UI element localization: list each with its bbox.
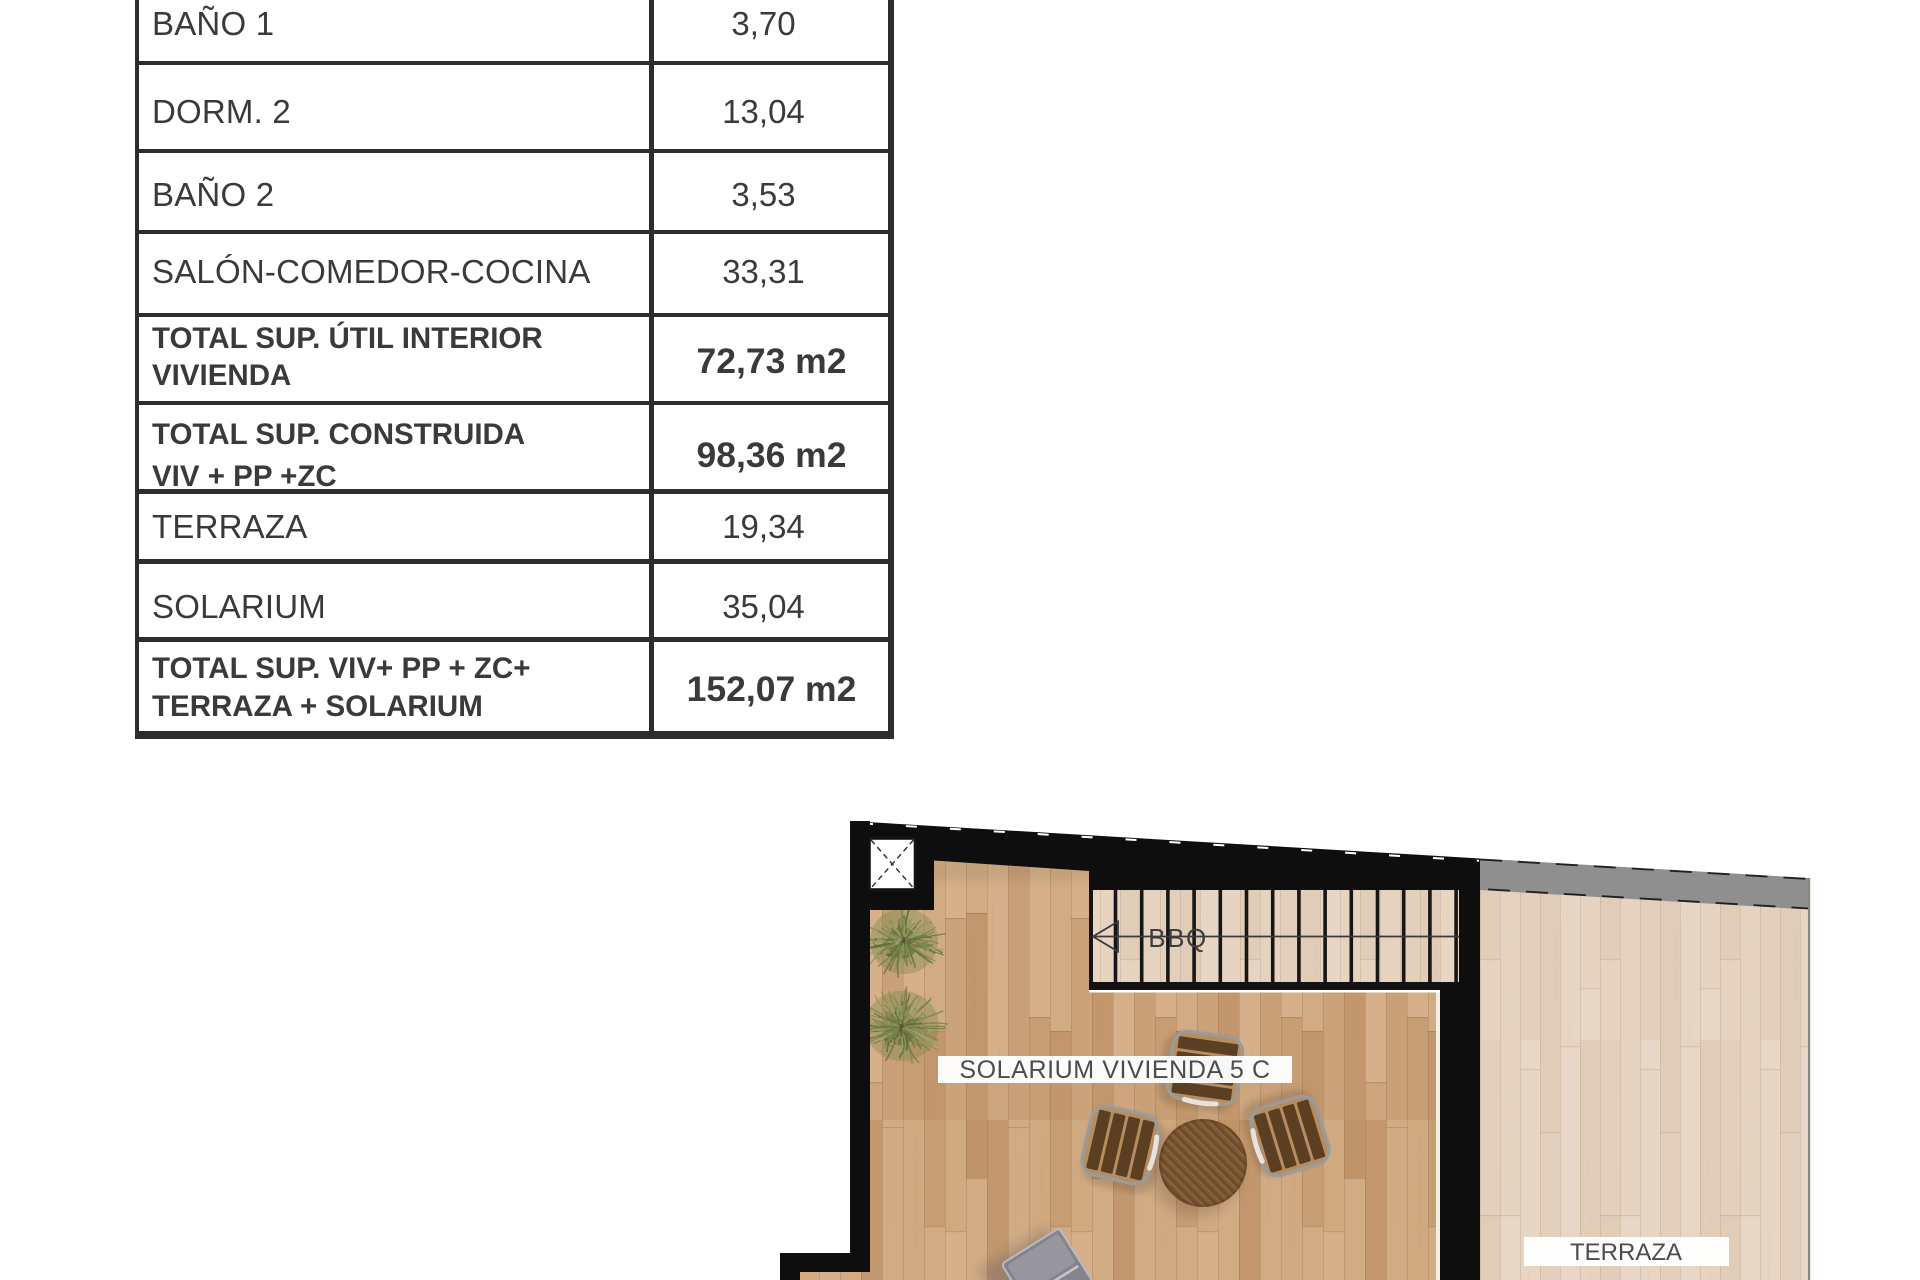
svg-text:BBQ: BBQ	[1148, 923, 1207, 953]
svg-text:SOLARIUM VIVIENDA 5 C: SOLARIUM VIVIENDA 5 C	[959, 1056, 1270, 1084]
svg-text:TERRAZA: TERRAZA	[1570, 1239, 1682, 1266]
